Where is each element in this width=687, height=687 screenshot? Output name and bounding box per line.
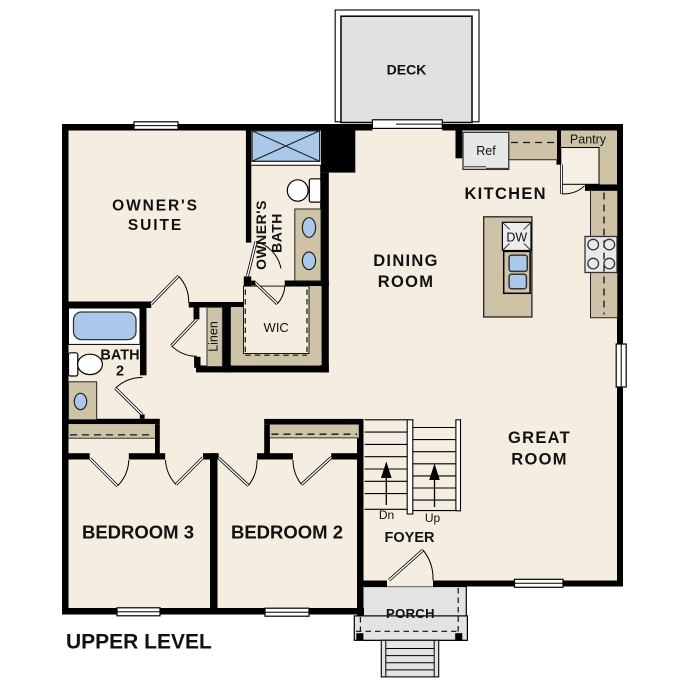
svg-text:UPPER LEVEL: UPPER LEVEL — [66, 631, 212, 654]
svg-text:FOYER: FOYER — [385, 530, 435, 546]
svg-text:DW: DW — [506, 231, 527, 245]
svg-text:DINING: DINING — [373, 252, 439, 270]
svg-text:OWNER'S: OWNER'S — [112, 198, 199, 215]
svg-text:BEDROOM 3: BEDROOM 3 — [82, 522, 194, 543]
svg-text:Pantry: Pantry — [570, 133, 607, 147]
svg-text:2: 2 — [116, 364, 124, 380]
svg-text:BATH: BATH — [269, 213, 285, 253]
svg-text:Ref: Ref — [476, 144, 496, 158]
svg-text:BATH: BATH — [100, 348, 139, 364]
svg-text:ROOM: ROOM — [378, 273, 435, 291]
svg-text:Dn: Dn — [379, 508, 394, 522]
svg-text:ROOM: ROOM — [511, 451, 568, 469]
svg-text:GREAT: GREAT — [508, 429, 571, 447]
svg-text:KITCHEN: KITCHEN — [464, 185, 546, 203]
svg-text:PORCH: PORCH — [386, 606, 435, 621]
svg-text:Up: Up — [425, 511, 441, 525]
svg-text:BEDROOM 2: BEDROOM 2 — [231, 522, 343, 543]
svg-text:SUITE: SUITE — [128, 217, 183, 234]
svg-text:DECK: DECK — [387, 62, 427, 78]
svg-text:OWNER'S: OWNER'S — [253, 200, 269, 270]
svg-text:Linen: Linen — [207, 321, 221, 352]
svg-text:WIC: WIC — [264, 320, 289, 335]
